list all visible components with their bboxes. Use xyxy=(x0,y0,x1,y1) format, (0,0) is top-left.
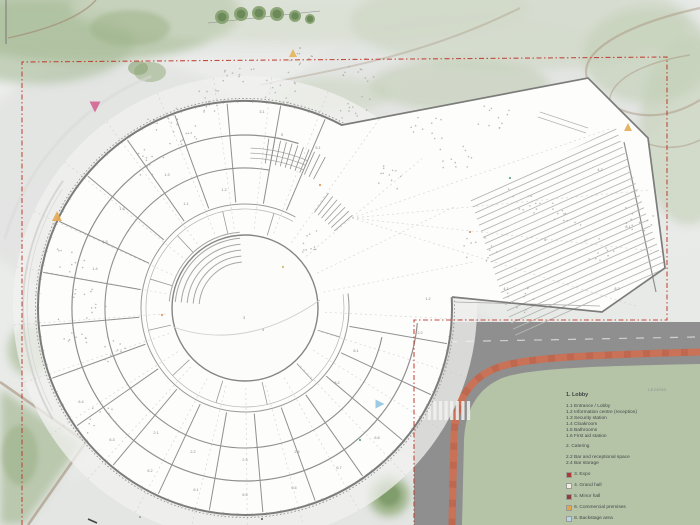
legend-entry: 6. Commercial premises xyxy=(566,505,698,511)
legend-entry-text: 2.4 Bar storage xyxy=(566,461,599,467)
legend-entry-text: 1.6 First aid station xyxy=(566,434,607,440)
legend-entry: 2.4 Bar storage xyxy=(566,461,698,467)
room-label: 4 xyxy=(262,328,264,332)
legend-marker-icon xyxy=(566,494,572,500)
legend-entry: 8. Backstage area xyxy=(566,516,698,522)
room-label: 6.7 xyxy=(336,466,341,470)
central-courtyard xyxy=(172,235,318,381)
room-label: 6.8 xyxy=(374,436,379,440)
legend-entry: 2. Catering xyxy=(566,444,698,450)
legend-entry-text: 5. Minor hall xyxy=(574,494,600,500)
room-label: 3.1 xyxy=(259,110,264,114)
legend-entry: 4. Grand hall xyxy=(566,483,698,489)
room-label: 1.2 xyxy=(221,188,226,192)
room-label: 2.2 xyxy=(417,331,422,335)
legend-entry-text: 2. Catering xyxy=(566,444,589,450)
legend-entry-text: 8. Backstage area xyxy=(574,516,613,522)
room-label: 6.1 xyxy=(193,488,198,492)
room-label: 1.4 xyxy=(92,267,97,271)
legend-marker-icon xyxy=(566,472,572,478)
room-label: 1.1 xyxy=(183,202,188,206)
room-label: 5.1 xyxy=(315,146,320,150)
room-label: 5 xyxy=(281,133,283,137)
legend: LEGEND 1. Lobby 1.1 Entrance / Lobby1.2 … xyxy=(566,388,698,525)
room-label: 2.4 xyxy=(294,450,299,454)
room-label: 4.1 xyxy=(503,287,508,291)
room-label: 8.1 xyxy=(353,349,358,353)
legend-entry-text: 6. Commercial premises xyxy=(574,505,626,511)
room-label: 6.5 xyxy=(242,493,247,497)
room-label: 2.2 xyxy=(190,450,195,454)
room-label: 8.1 xyxy=(625,225,630,229)
legend-corner-note: LEGEND xyxy=(648,387,667,392)
room-label: 6.6 xyxy=(291,486,296,490)
room-label: 4.2 xyxy=(597,168,602,172)
room-label: 8.2 xyxy=(614,287,619,291)
room-label: 4 xyxy=(544,238,546,242)
legend-entry: 5. Minor hall xyxy=(566,494,698,500)
legend-entry-text: 3. Expo xyxy=(574,472,590,478)
legend-items: 1.1 Entrance / Lobby1.2 Information cent… xyxy=(566,404,698,525)
legend-title: 1. Lobby xyxy=(566,392,698,398)
room-label: 6.2 xyxy=(147,469,152,473)
legend-marker-icon xyxy=(566,505,572,511)
room-label: 1.2 xyxy=(425,297,430,301)
room-label: 6.4 xyxy=(78,400,83,404)
room-label: 1.3 xyxy=(164,173,169,177)
room-label: 2.3 xyxy=(242,458,247,462)
legend-marker-icon xyxy=(566,516,572,522)
room-label: 6.3 xyxy=(109,438,114,442)
room-label: 1.5 xyxy=(102,240,107,244)
room-label: 8.2 xyxy=(334,381,339,385)
legend-entry: 1.6 First aid station xyxy=(566,434,698,440)
site-plan-page: 6.46.36.26.16.56.66.76.82.12.22.32.41.41… xyxy=(0,0,700,525)
legend-entry-text: 4. Grand hall xyxy=(574,483,601,489)
room-label: 1.6 xyxy=(119,207,124,211)
legend-entry: 3. Expo xyxy=(566,472,698,478)
room-label: 3 xyxy=(243,316,245,320)
legend-marker-icon xyxy=(566,483,572,489)
room-label: 2.1 xyxy=(153,431,158,435)
